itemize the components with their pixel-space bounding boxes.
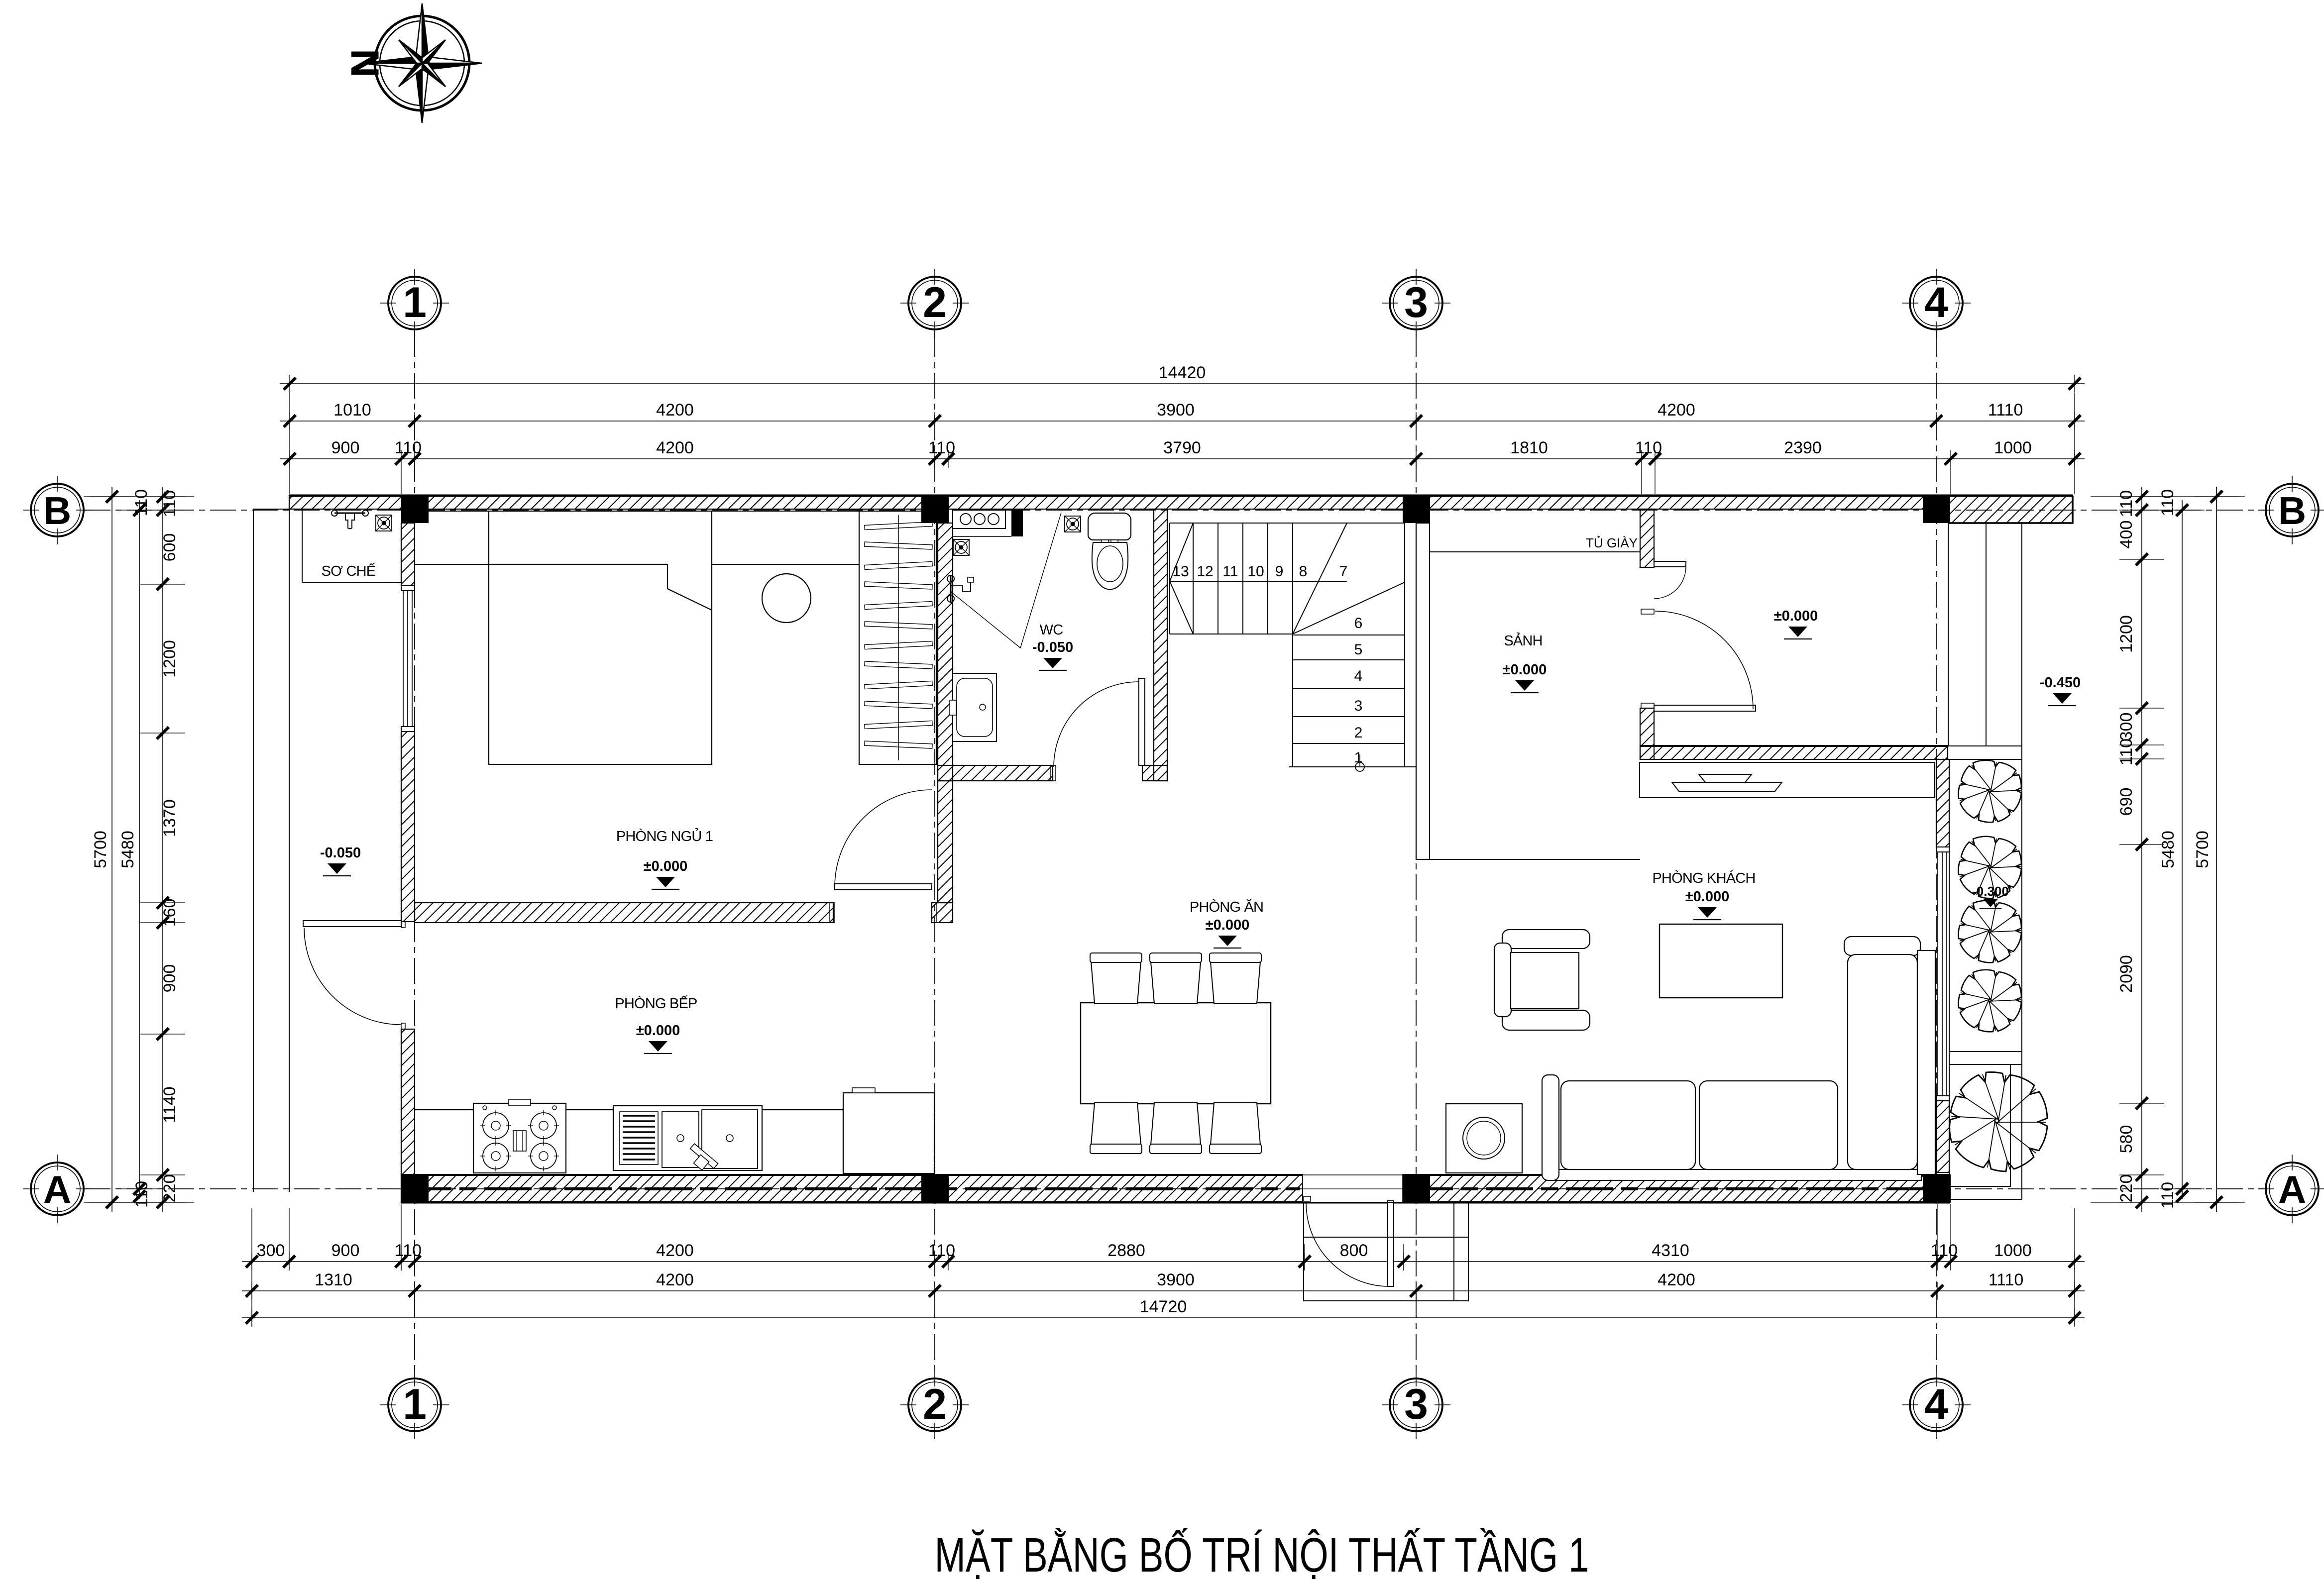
svg-text:4: 4 — [1354, 668, 1363, 684]
svg-text:4200: 4200 — [1658, 401, 1695, 420]
svg-text:14420: 14420 — [1159, 363, 1206, 382]
svg-text:400: 400 — [2117, 521, 2136, 549]
svg-text:13: 13 — [1172, 563, 1189, 580]
svg-text:4200: 4200 — [656, 401, 694, 420]
svg-text:900: 900 — [332, 438, 360, 457]
svg-text:580: 580 — [2117, 1125, 2136, 1154]
svg-text:1370: 1370 — [160, 799, 179, 837]
svg-text:TỦ GIÀY: TỦ GIÀY — [1586, 535, 1638, 550]
svg-text:600: 600 — [160, 533, 179, 562]
svg-text:4200: 4200 — [656, 438, 694, 457]
svg-text:SẢNH: SẢNH — [1504, 632, 1542, 649]
svg-text:9: 9 — [1275, 563, 1284, 580]
svg-text:±0.000: ±0.000 — [1685, 889, 1730, 905]
svg-text:110: 110 — [160, 490, 179, 517]
svg-text:-0.300: -0.300 — [1972, 884, 2009, 899]
svg-text:3: 3 — [1404, 279, 1428, 326]
svg-text:110: 110 — [928, 1241, 955, 1260]
svg-text:1010: 1010 — [333, 401, 371, 420]
svg-text:1310: 1310 — [315, 1270, 352, 1289]
svg-text:2: 2 — [923, 279, 947, 326]
svg-text:-0.450: -0.450 — [2040, 675, 2081, 691]
svg-text:3: 3 — [1354, 698, 1363, 714]
svg-text:7: 7 — [1339, 563, 1348, 580]
svg-text:4310: 4310 — [1652, 1241, 1689, 1260]
svg-text:2090: 2090 — [2117, 955, 2136, 993]
svg-text:2: 2 — [923, 1380, 947, 1428]
svg-text:±0.000: ±0.000 — [1206, 917, 1250, 933]
svg-text:B: B — [2278, 489, 2306, 532]
svg-text:PHÒNG NGỦ 1: PHÒNG NGỦ 1 — [616, 828, 713, 845]
svg-text:110: 110 — [1931, 1241, 1958, 1260]
svg-text:1140: 1140 — [160, 1086, 179, 1123]
svg-text:3900: 3900 — [1157, 401, 1195, 420]
svg-text:5700: 5700 — [91, 831, 110, 868]
svg-text:MẶT BẰNG BỐ TRÍ NỘI THẤT TẦNG: MẶT BẰNG BỐ TRÍ NỘI THẤT TẦNG 1 — [935, 1528, 1589, 1582]
svg-text:N: N — [343, 49, 387, 77]
svg-text:1200: 1200 — [2117, 615, 2136, 653]
svg-text:PHÒNG BẾP: PHÒNG BẾP — [615, 995, 697, 1012]
svg-text:12: 12 — [1197, 563, 1213, 580]
svg-text:11: 11 — [1222, 563, 1238, 580]
svg-text:900: 900 — [332, 1241, 360, 1260]
svg-text:±0.000: ±0.000 — [1774, 608, 1818, 624]
svg-text:B: B — [43, 489, 71, 532]
svg-text:-0.050: -0.050 — [1032, 639, 1073, 655]
svg-text:160: 160 — [160, 899, 179, 927]
svg-text:300: 300 — [257, 1241, 285, 1260]
svg-text:4: 4 — [1924, 279, 1948, 326]
svg-text:1: 1 — [1354, 749, 1363, 766]
svg-text:5700: 5700 — [2193, 831, 2212, 868]
svg-text:±0.000: ±0.000 — [644, 858, 688, 874]
svg-text:±0.000: ±0.000 — [1503, 662, 1547, 678]
svg-text:3900: 3900 — [1157, 1270, 1195, 1289]
svg-text:A: A — [43, 1167, 71, 1211]
svg-text:5480: 5480 — [118, 831, 137, 868]
svg-text:5: 5 — [1354, 641, 1363, 658]
svg-text:3790: 3790 — [1163, 438, 1201, 457]
svg-text:1110: 1110 — [1988, 401, 2023, 420]
svg-text:1110: 1110 — [1989, 1270, 2024, 1289]
svg-text:110: 110 — [395, 1241, 422, 1260]
svg-text:WC: WC — [1040, 622, 1063, 638]
svg-text:14720: 14720 — [1140, 1297, 1187, 1316]
svg-text:110: 110 — [1635, 438, 1662, 457]
svg-text:5480: 5480 — [2159, 831, 2178, 868]
svg-text:4200: 4200 — [656, 1241, 694, 1260]
svg-text:2880: 2880 — [1107, 1241, 1145, 1260]
svg-text:1: 1 — [403, 1380, 427, 1428]
svg-text:110: 110 — [132, 489, 151, 516]
svg-text:PHÒNG KHÁCH: PHÒNG KHÁCH — [1652, 870, 1755, 886]
svg-text:1000: 1000 — [1994, 438, 2032, 457]
svg-text:10: 10 — [1247, 563, 1264, 580]
svg-text:900: 900 — [160, 964, 179, 993]
svg-text:220: 220 — [2117, 1174, 2136, 1203]
svg-text:±0.000: ±0.000 — [636, 1023, 680, 1039]
svg-text:110: 110 — [395, 438, 422, 457]
svg-text:110: 110 — [2117, 739, 2136, 765]
svg-text:1: 1 — [403, 279, 427, 326]
svg-text:4200: 4200 — [1658, 1270, 1695, 1289]
svg-text:300: 300 — [2117, 713, 2136, 741]
svg-text:-0.050: -0.050 — [320, 845, 361, 861]
svg-text:4200: 4200 — [656, 1270, 694, 1289]
svg-text:3: 3 — [1404, 1380, 1428, 1428]
svg-text:A: A — [2278, 1167, 2306, 1211]
svg-text:110: 110 — [928, 438, 955, 457]
svg-text:1000: 1000 — [1994, 1241, 2032, 1260]
svg-text:4: 4 — [1924, 1380, 1948, 1428]
svg-text:110: 110 — [2117, 490, 2136, 517]
svg-text:1810: 1810 — [1510, 438, 1548, 457]
svg-text:6: 6 — [1354, 615, 1363, 632]
svg-text:690: 690 — [2117, 788, 2136, 816]
svg-text:PHÒNG ĂN: PHÒNG ĂN — [1190, 899, 1263, 915]
svg-text:2390: 2390 — [1784, 438, 1822, 457]
svg-text:1200: 1200 — [160, 640, 179, 678]
svg-text:800: 800 — [1340, 1241, 1368, 1260]
svg-text:8: 8 — [1299, 563, 1308, 580]
svg-text:SƠ CHẾ: SƠ CHẾ — [322, 562, 376, 579]
svg-text:2: 2 — [1354, 725, 1363, 741]
svg-text:220: 220 — [160, 1174, 179, 1203]
svg-text:110: 110 — [2158, 1182, 2177, 1209]
svg-text:110: 110 — [2158, 489, 2177, 516]
